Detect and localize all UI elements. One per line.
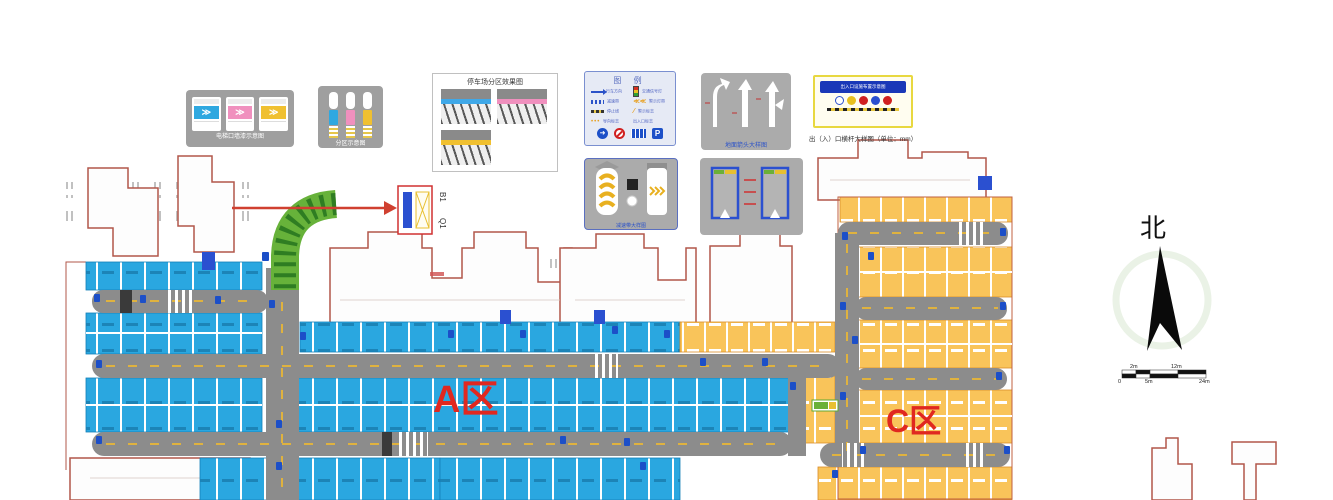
svg-text:24m: 24m [1199, 379, 1210, 385]
entrance-ramp [285, 204, 336, 290]
north-arrow: 北 [1116, 213, 1208, 351]
elevator-card-pink: ≫ [226, 97, 255, 131]
turn-arrow-icon [713, 78, 730, 127]
zoning-column-blue [329, 92, 338, 138]
zoning-column-yellow [363, 92, 372, 138]
blue-sign-icon [871, 96, 880, 105]
parking-space-detail [700, 158, 803, 224]
barrier-banner: 出入口设施布置示意图 [820, 81, 906, 93]
guide-dots-icon: ••• [591, 119, 600, 125]
rendering-yellow [441, 130, 491, 165]
north-label: 北 [1140, 213, 1166, 243]
straight-arrow-icon [738, 79, 752, 127]
speed-bump-detail [585, 159, 676, 217]
speed-bump-icon [591, 100, 604, 104]
red-sign-icon [859, 96, 868, 105]
direction-arrow-icon [591, 91, 603, 93]
light-strip-icon: ≪≪ [633, 98, 646, 105]
parking-space-detail-box [700, 158, 803, 235]
svg-text:2m: 2m [1130, 364, 1138, 370]
rendering-blue [441, 89, 491, 124]
callout-label-q1: Q1 [438, 218, 447, 229]
zone-c-label: C区 [886, 403, 941, 439]
elevator-cards: ≫ ≫ ≫ [186, 90, 294, 133]
legend-sign-icons: ➜ P [585, 128, 675, 139]
no-entry-sign-icon [614, 128, 625, 139]
guide-board-icon [631, 129, 646, 138]
barrier-stripe-bar [827, 108, 899, 111]
renderings-grid [433, 89, 557, 165]
zoning-legend-box: 分区示意图 [318, 86, 383, 148]
pavement-arrows-caption: 地面箭头大样图 [701, 140, 791, 149]
barrier-caption: 出（入）口横杆大样图（单位：mm） [798, 133, 928, 143]
mandatory-sign-icon: ➜ [597, 128, 608, 139]
legend-title: 图 例 [585, 75, 675, 86]
parking-space-left [712, 168, 738, 218]
elevator-card-yellow: ≫ [259, 97, 288, 131]
white-circle-marker [627, 196, 637, 206]
legend-right-column: 交通信号灯 ≪≪ 警示灯带 ⁄ 警示标志 出入口标志 [633, 88, 669, 125]
parking-sign-icon: P [652, 128, 663, 139]
zone-a-label: A区 [433, 379, 498, 421]
stop-line-icon [591, 110, 604, 113]
entrance-barrier-box: 出入口设施布置示意图 [813, 75, 913, 128]
speed-bump-detail-box: 减速带大样图 [584, 158, 678, 230]
legend-left-column: 行车方向 减速带 停止线 ••• 导向标志 [591, 88, 626, 125]
elevator-box-caption: 电梯口墙漆示意图 [186, 133, 294, 141]
barrier-sign-icons [820, 96, 906, 105]
elevator-card-blue: ≫ [192, 97, 221, 131]
svg-text:5m: 5m [1145, 379, 1153, 385]
arrow-right-icon: ≫ [261, 106, 286, 119]
pavement-arrow-shapes [701, 73, 791, 135]
arrow-right-icon: ≫ [194, 106, 219, 119]
svg-text:0: 0 [1118, 379, 1121, 385]
zoning-column-pink [346, 92, 355, 138]
scale-bar [1122, 370, 1206, 378]
black-square-marker [627, 179, 638, 190]
elevator-paint-legend-box: ≫ ≫ ≫ 电梯口墙漆示意图 [186, 90, 294, 147]
parking-space-right [762, 168, 788, 218]
callout-label-b1: B1 [438, 192, 447, 202]
ring-sign-icon [835, 96, 844, 105]
traffic-light-icon [633, 86, 639, 97]
warning-mark-icon: ⁄ [633, 108, 634, 115]
charging-bay-marker [812, 400, 838, 411]
pavement-arrows-box: 地面箭头大样图 [701, 73, 791, 150]
detail-callout: B1 Q1 [232, 186, 447, 234]
symbols-legend-box: 图 例 行车方向 减速带 停止线 ••• 导向标志 交通信号灯 ≪≪ 警示灯带 … [584, 71, 676, 146]
red-sign-icon [883, 96, 892, 105]
arrow-right-icon: ≫ [228, 106, 253, 119]
speed-bump-caption: 减速带大样图 [585, 222, 677, 229]
yellow-sign-icon [847, 96, 856, 105]
parking-floor-plan: B1 Q1 A区 C区 北 0 2m 5m 12m 24m ≫ ≫ [0, 0, 1333, 500]
dimension-marks [744, 180, 756, 204]
zoning-columns [318, 86, 383, 138]
rendering-pink [497, 89, 547, 124]
zone-renderings-box: 停车场分区效果图 [432, 73, 558, 172]
renderings-title: 停车场分区效果图 [433, 77, 557, 87]
zoning-box-caption: 分区示意图 [318, 140, 383, 148]
svg-text:12m: 12m [1171, 364, 1182, 370]
